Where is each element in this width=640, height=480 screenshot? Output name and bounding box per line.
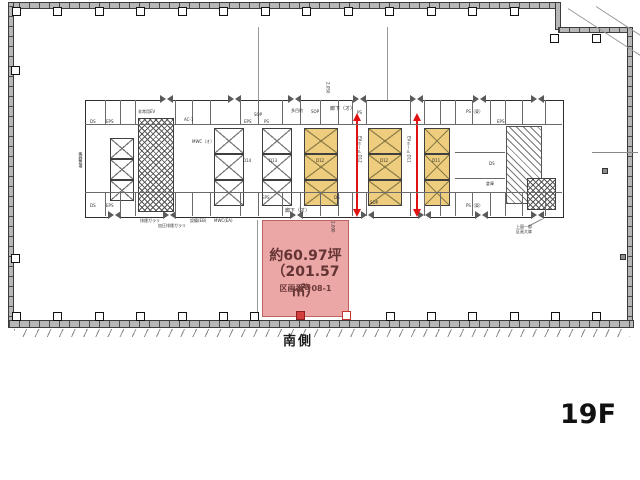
core-partition (320, 100, 321, 124)
core-partition (410, 100, 411, 124)
column (468, 312, 477, 321)
elevator-car-highlighted (424, 128, 450, 154)
core-partition (455, 100, 456, 124)
column-small (602, 168, 608, 174)
shaft-hatch (138, 118, 174, 212)
column (302, 7, 311, 16)
room-label: EVホール D12 (357, 136, 361, 163)
dimension-line (258, 27, 259, 100)
column (592, 312, 601, 321)
room-label: 多目的 (291, 109, 303, 113)
column (592, 34, 601, 43)
core-partition (282, 100, 283, 124)
core-partition (352, 192, 353, 216)
core-partition (258, 192, 259, 216)
core-partition (424, 100, 425, 124)
elevator-car (262, 128, 292, 154)
room-label: EVホール D11 (406, 136, 410, 163)
room-label: 排煙ガラリ (140, 219, 160, 223)
core-partition (135, 192, 136, 216)
elevator-car-highlighted (304, 180, 338, 206)
room-label: 倉庫 (486, 182, 494, 186)
room-label: DS (90, 120, 96, 124)
south-side-label: 南側 (266, 330, 330, 349)
column (551, 312, 560, 321)
column (385, 7, 394, 16)
column (219, 312, 228, 321)
core-partition (175, 100, 176, 124)
column (95, 312, 104, 321)
core-partition (85, 192, 562, 193)
core-partition (135, 100, 136, 124)
core-partition (210, 100, 211, 124)
core-partition (505, 100, 506, 124)
column (250, 312, 259, 321)
core-partition (410, 192, 411, 216)
column (427, 312, 436, 321)
core-partition (490, 100, 491, 124)
double-door-icon (160, 95, 173, 103)
elevator-car (110, 159, 134, 180)
core-partition (490, 192, 491, 216)
core-partition (455, 152, 505, 153)
core-partition (455, 178, 505, 179)
elevator-car (262, 180, 292, 206)
room-label: 加圧排煙ガラリ (158, 224, 186, 228)
core-partition (522, 192, 523, 216)
room-label: 2,050 (325, 82, 329, 93)
room-label: 廊下（オ） (285, 209, 310, 215)
double-door-icon (410, 95, 423, 103)
core-partition (320, 192, 321, 216)
elevator-car (110, 138, 134, 159)
room-label: 廊下（オ） (330, 107, 355, 113)
column (136, 7, 145, 16)
column (11, 254, 20, 263)
core-partition (505, 192, 506, 216)
core-partition (522, 100, 523, 124)
room-label: EPS (106, 120, 113, 124)
room-label: 2,090 (330, 221, 334, 232)
elevator-car-highlighted (304, 128, 338, 154)
room-label: DS (90, 204, 96, 208)
core-partition (175, 192, 176, 216)
room-label: AC-1 (184, 118, 193, 122)
room-label: D12 (380, 159, 388, 163)
double-door-icon (353, 95, 366, 103)
double-door-icon (531, 211, 544, 219)
core-partition (85, 124, 562, 125)
core-partition (545, 100, 546, 124)
room-label: 区画大扉 (516, 230, 532, 234)
core-partition (366, 100, 367, 124)
room-label: MWC(EA) (214, 219, 233, 223)
column (219, 7, 228, 16)
elevator-car (214, 154, 244, 180)
core-partition (282, 192, 283, 216)
floor-number-label: 19F (560, 399, 616, 430)
core-partition (545, 192, 546, 216)
column-small (620, 254, 626, 260)
double-door-icon (473, 95, 486, 103)
elevator-car (262, 154, 292, 180)
core-partition (366, 192, 367, 216)
column-red-outline (342, 311, 351, 320)
column (11, 66, 20, 75)
core-partition (440, 192, 441, 216)
core-partition (120, 192, 121, 216)
room-label: EPS (497, 120, 504, 124)
column (95, 7, 104, 16)
room-label: D14 (243, 159, 251, 163)
column (178, 7, 187, 16)
elevator-car (214, 128, 244, 154)
column (550, 34, 559, 43)
room-label: 設備(EB) (190, 219, 206, 223)
room-label: D11 (432, 159, 440, 163)
column (468, 7, 477, 16)
column (427, 7, 436, 16)
dimension-line (257, 220, 258, 312)
room-label: SOP (311, 110, 319, 114)
room-label: PS（東） (466, 204, 483, 208)
room-label: D12 (316, 159, 324, 163)
room-label: EPS (106, 204, 113, 208)
elevator-car (110, 180, 134, 201)
core-partition (210, 192, 211, 216)
room-label: MWC（オ） (192, 140, 214, 144)
dimension-line (387, 27, 388, 100)
column (510, 312, 519, 321)
core-partition (240, 100, 241, 124)
room-label: D13 (269, 159, 277, 163)
room-label: EPS (244, 120, 251, 124)
room-label: DS (489, 162, 495, 166)
room-label: DS (334, 196, 340, 200)
room-label: PS (357, 111, 362, 115)
double-door-icon (475, 211, 488, 219)
column (178, 312, 187, 321)
column (510, 7, 519, 16)
room-label: 非常用EV (138, 110, 155, 114)
column (53, 7, 62, 16)
core-partition (440, 100, 441, 124)
core-partition (455, 192, 456, 216)
elevator-car-highlighted (424, 180, 450, 206)
shaft-hatch (527, 178, 556, 210)
column (12, 7, 21, 16)
room-label: SOP (254, 113, 262, 117)
column (136, 312, 145, 321)
room-label: SOP (370, 201, 378, 205)
core-partition (240, 192, 241, 216)
column (53, 312, 62, 321)
double-door-icon (361, 211, 374, 219)
ev-hall-arrow (416, 121, 418, 209)
core-partition (120, 100, 121, 124)
floor-plan-canvas: 約60.97坪 （201.57㎡） 区画番号08-1 多目的SOP廊下（オ）PS… (0, 0, 640, 480)
column (344, 7, 353, 16)
room-label: PS (264, 120, 269, 124)
double-door-icon (531, 95, 544, 103)
core-partition (192, 192, 193, 216)
elevator-car-highlighted (368, 128, 402, 154)
column (261, 7, 270, 16)
ev-hall-arrow (356, 121, 358, 209)
room-label: EPS (262, 196, 269, 200)
room-label: PS（東） (466, 110, 483, 114)
core-partition (424, 192, 425, 216)
plan-details-layer: 多目的SOP廊下（オ）PS非常用EVAC-1EPSDSEPSDSMWC（オ）SO… (0, 0, 640, 480)
column (386, 312, 395, 321)
room-label: 機器置場 (78, 152, 82, 168)
column-red-filled (296, 311, 305, 320)
column (12, 312, 21, 321)
